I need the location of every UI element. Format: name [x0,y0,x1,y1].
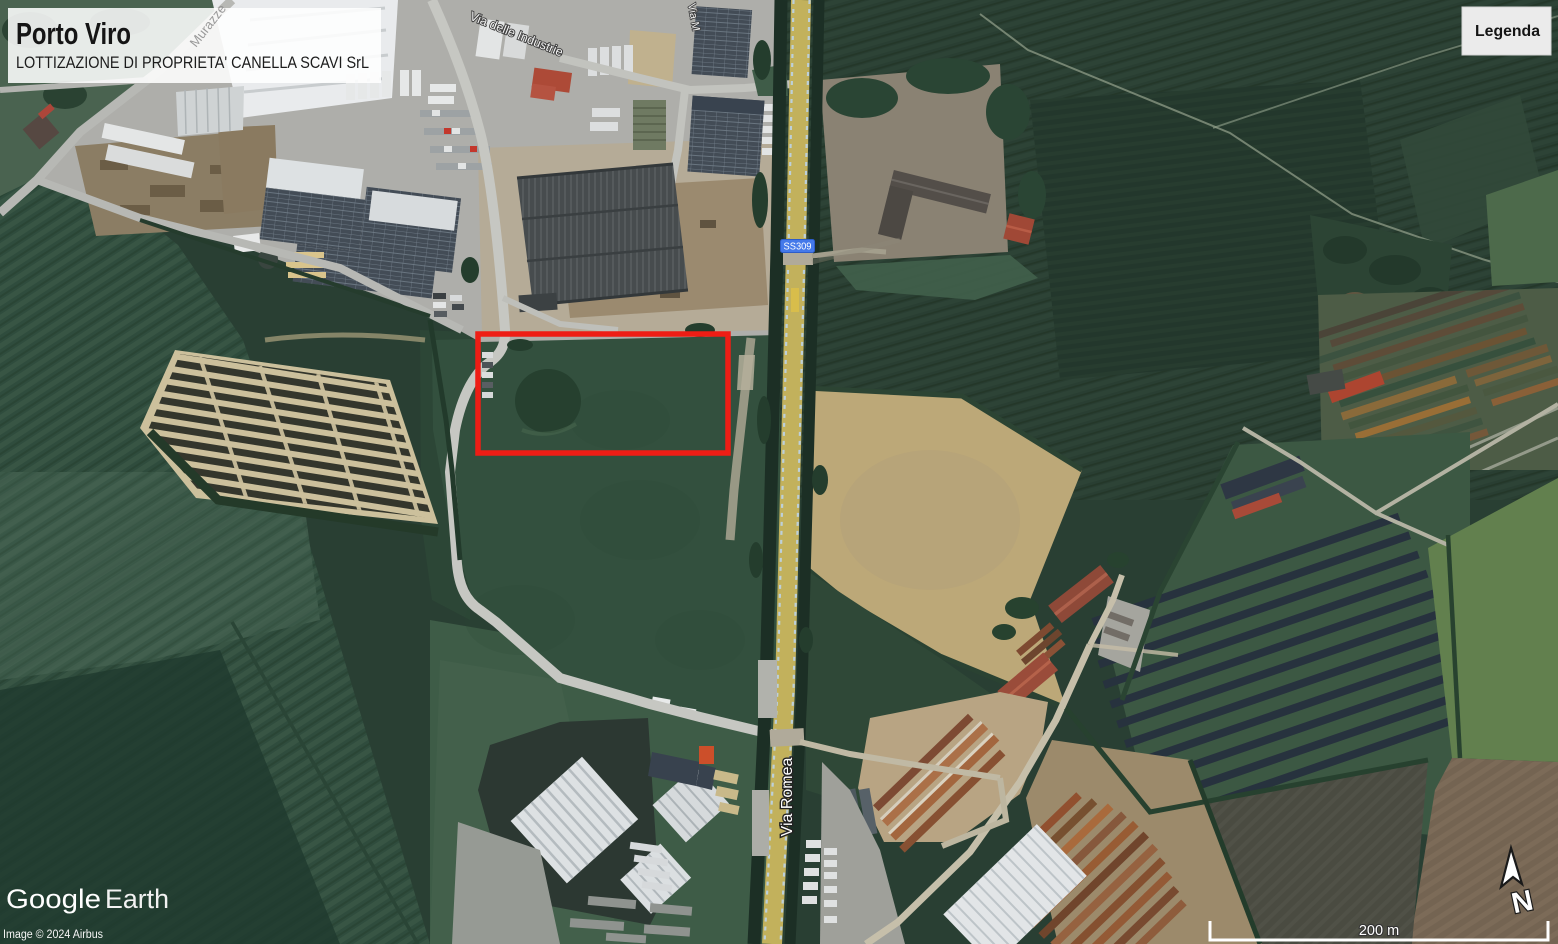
svg-text:Porto Viro: Porto Viro [16,16,131,51]
svg-text:Legenda: Legenda [1475,23,1540,40]
svg-text:200 m: 200 m [1359,923,1399,939]
svg-text:Earth: Earth [105,884,169,914]
svg-text:Via Romea: Via Romea [779,757,796,836]
svg-text:Image © 2024 Airbus: Image © 2024 Airbus [3,929,103,941]
svg-text:Google: Google [6,884,101,914]
svg-text:LOTTIZAZIONE DI PROPRIETA' CAN: LOTTIZAZIONE DI PROPRIETA' CANELLA SCAVI… [16,54,369,72]
svg-text:SS309: SS309 [784,241,812,253]
